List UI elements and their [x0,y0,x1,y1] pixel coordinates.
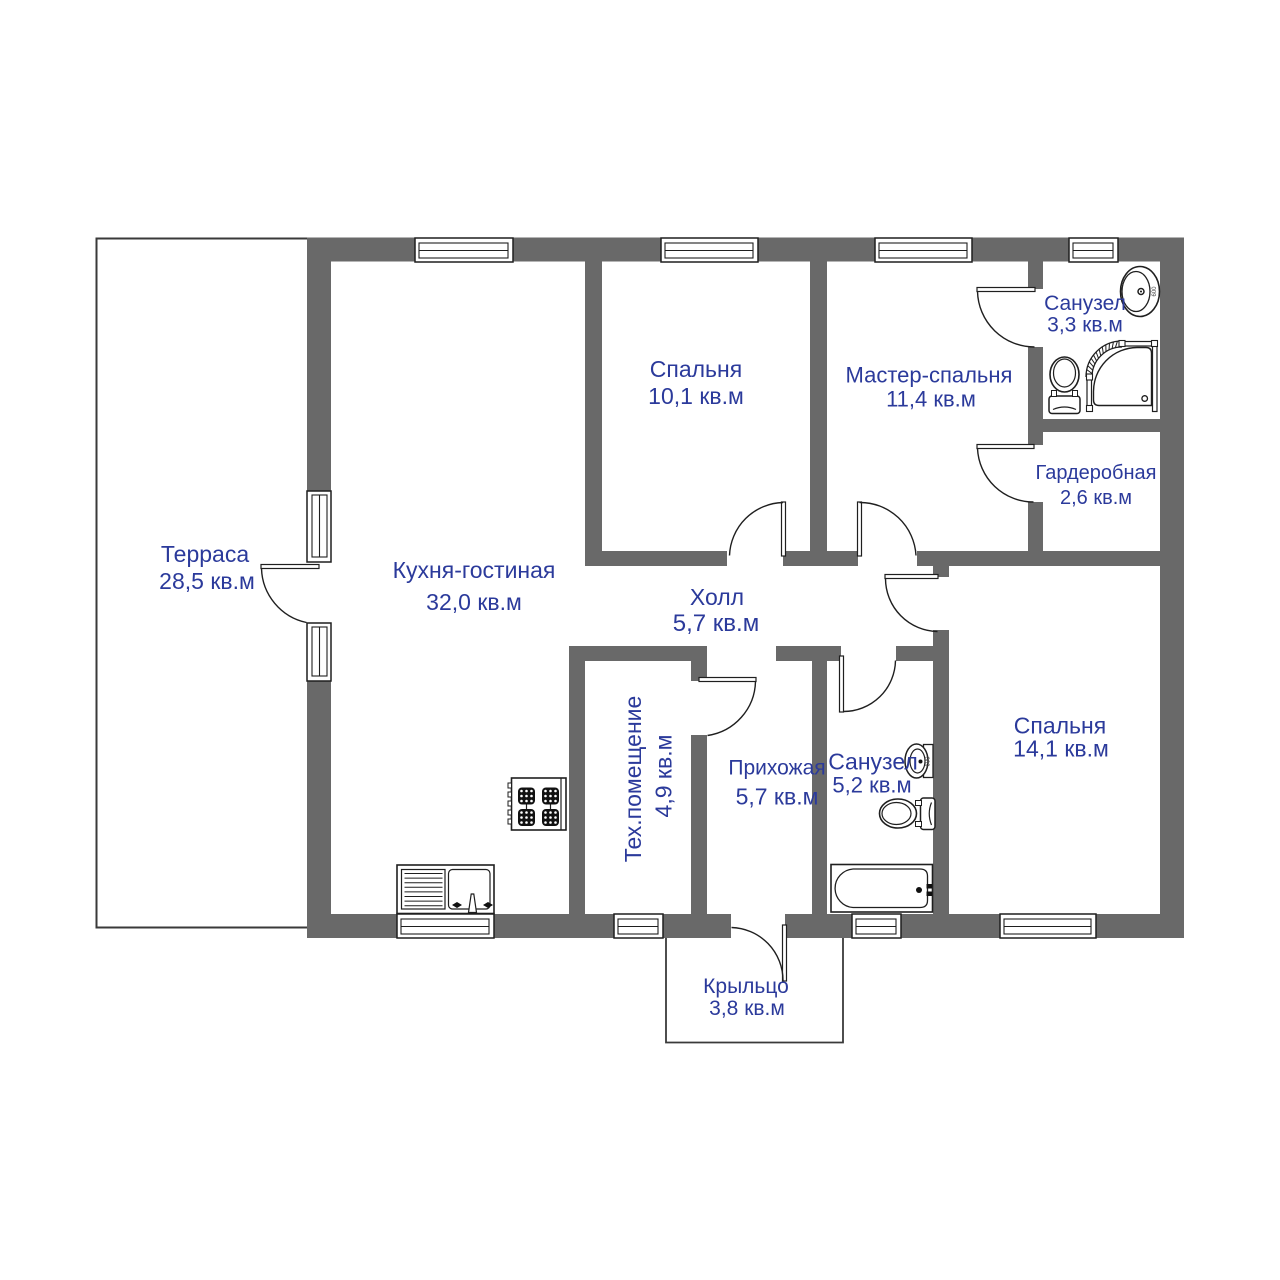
svg-text:Кухня-гостиная: Кухня-гостиная [393,557,556,583]
svg-text:5,7 кв.м: 5,7 кв.м [673,610,759,637]
svg-text:Прихожая: Прихожая [728,757,825,780]
svg-text:Спальня: Спальня [650,356,742,382]
svg-text:Терраса: Терраса [161,541,249,567]
svg-text:600: 600 [1152,286,1158,297]
svg-text:Гардеробная: Гардеробная [1036,462,1157,484]
svg-text:Санузел: Санузел [828,749,918,775]
svg-text:14,1 кв.м: 14,1 кв.м [1013,736,1109,762]
svg-text:5,2 кв.м: 5,2 кв.м [832,773,911,798]
svg-text:32,0 кв.м: 32,0 кв.м [426,589,522,615]
svg-text:Крыльцо: Крыльцо [703,975,789,998]
svg-text:2,6 кв.м: 2,6 кв.м [1060,487,1132,509]
svg-text:Тех.помещение: Тех.помещение [620,696,646,863]
svg-text:5,7 кв.м: 5,7 кв.м [736,784,819,810]
svg-text:600: 600 [926,756,932,767]
svg-text:3,8 кв.м: 3,8 кв.м [709,997,785,1020]
svg-text:Холл: Холл [690,584,744,610]
svg-text:4,9 кв.м: 4,9 кв.м [651,735,677,818]
svg-text:11,4 кв.м: 11,4 кв.м [886,387,976,412]
svg-text:3,3 кв.м: 3,3 кв.м [1047,314,1123,337]
svg-text:10,1 кв.м: 10,1 кв.м [648,383,744,409]
svg-text:28,5 кв.м: 28,5 кв.м [159,568,255,594]
svg-text:Санузел: Санузел [1044,292,1126,315]
svg-text:Мастер-спальня: Мастер-спальня [846,363,1013,388]
